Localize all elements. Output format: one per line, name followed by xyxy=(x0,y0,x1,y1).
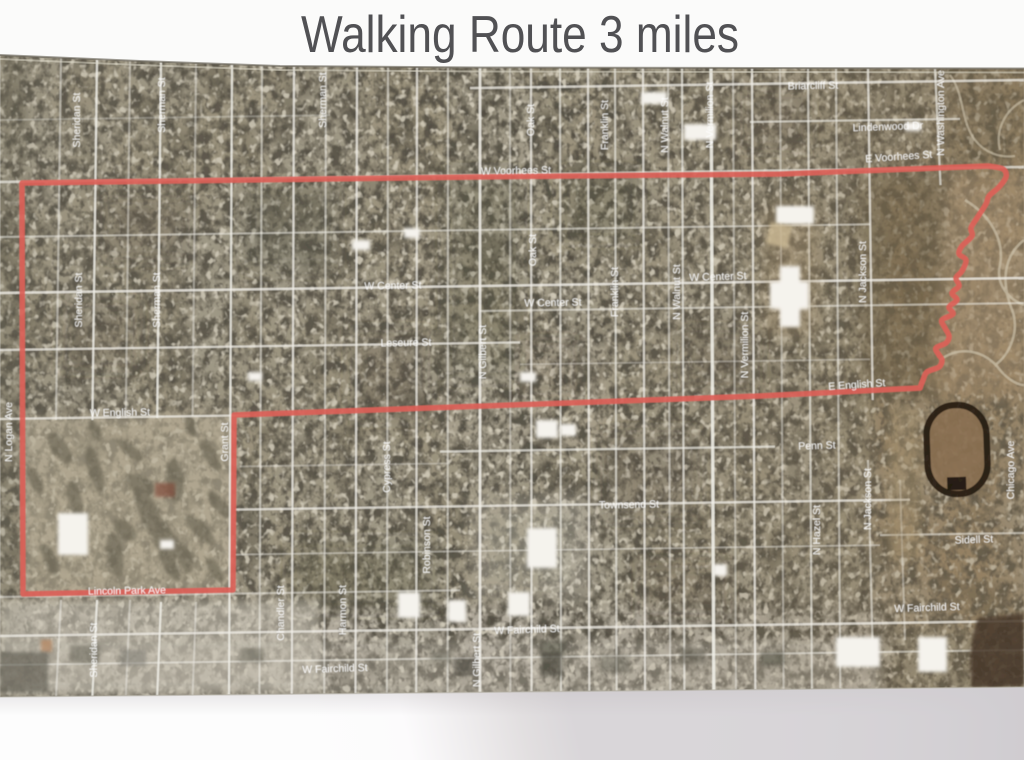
svg-text:Sherman St: Sherman St xyxy=(317,72,329,128)
svg-text:N Jackson St: N Jackson St xyxy=(857,241,869,303)
svg-text:W Center St: W Center St xyxy=(364,280,421,293)
svg-text:Sheridan St: Sheridan St xyxy=(88,622,100,677)
svg-text:Robinson St: Robinson St xyxy=(421,516,433,573)
svg-text:Franklin St: Franklin St xyxy=(599,100,611,150)
svg-text:Sherman St: Sherman St xyxy=(156,77,168,133)
svg-text:Sheridan St: Sheridan St xyxy=(73,272,85,327)
svg-text:Harmon St: Harmon St xyxy=(337,585,349,635)
svg-text:Oak St: Oak St xyxy=(527,234,539,266)
svg-text:W Fairchild St: W Fairchild St xyxy=(894,601,960,615)
svg-text:Lindenwood Dr: Lindenwood Dr xyxy=(852,120,924,134)
svg-text:N Logan Ave: N Logan Ave xyxy=(3,402,15,462)
svg-text:Walking Route 3 miles: Walking Route 3 miles xyxy=(301,6,739,64)
svg-text:Leseure St: Leseure St xyxy=(380,337,431,350)
svg-text:Townsend St: Townsend St xyxy=(599,498,659,511)
svg-text:Lincoln Park Ave: Lincoln Park Ave xyxy=(88,584,166,597)
svg-text:N Washington Ave: N Washington Ave xyxy=(935,70,947,156)
svg-text:W Fairchild St: W Fairchild St xyxy=(302,662,368,676)
svg-text:Cypress St: Cypress St xyxy=(381,441,393,492)
svg-text:N Hazel St: N Hazel St xyxy=(811,505,823,555)
svg-text:Chicago Ave: Chicago Ave xyxy=(1005,440,1017,499)
svg-text:Franklin St: Franklin St xyxy=(609,267,621,317)
svg-text:Sidell St: Sidell St xyxy=(954,533,993,546)
svg-text:Chandler St: Chandler St xyxy=(275,585,287,641)
svg-text:Briarcliff St: Briarcliff St xyxy=(788,80,839,93)
svg-text:W Voorhees St: W Voorhees St xyxy=(481,164,551,177)
svg-text:W Fairchild St: W Fairchild St xyxy=(494,623,560,637)
svg-text:Sherman St: Sherman St xyxy=(151,272,163,328)
svg-text:W Center St: W Center St xyxy=(689,270,747,284)
svg-text:N Vermilion St: N Vermilion St xyxy=(739,312,751,379)
svg-text:N Gilbert St: N Gilbert St xyxy=(471,633,483,687)
svg-text:N Walnut St: N Walnut St xyxy=(659,97,671,153)
svg-text:N Walnut St: N Walnut St xyxy=(671,264,683,320)
svg-text:W English St: W English St xyxy=(90,406,150,419)
svg-text:N Gilbert St: N Gilbert St xyxy=(477,325,489,379)
svg-text:Penn St: Penn St xyxy=(798,439,836,452)
svg-text:Sheridan St: Sheridan St xyxy=(71,92,83,147)
svg-text:W Center St: W Center St xyxy=(524,297,581,310)
svg-text:N Jackson St: N Jackson St xyxy=(862,468,874,530)
svg-text:Oak St: Oak St xyxy=(525,104,537,136)
svg-text:N Vermilion St: N Vermilion St xyxy=(704,82,716,149)
svg-text:Grant St: Grant St xyxy=(219,422,231,461)
